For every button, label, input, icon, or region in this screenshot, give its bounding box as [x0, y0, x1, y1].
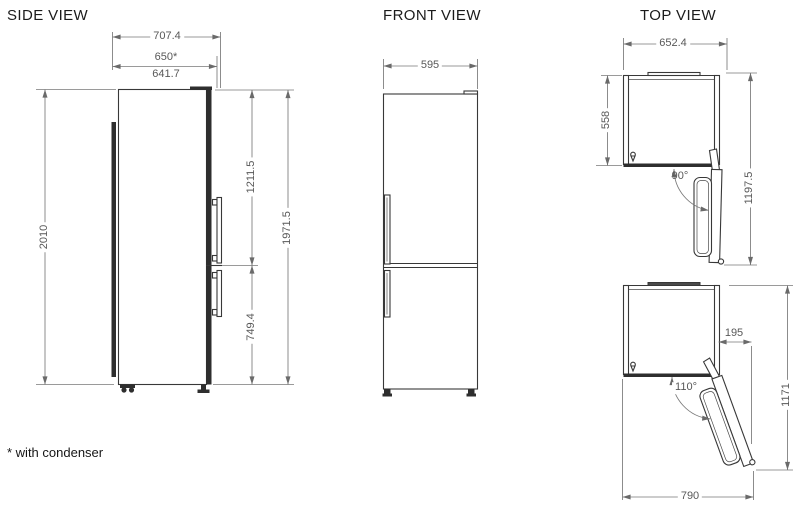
dim-freezer-door-height: 749.4: [246, 310, 258, 344]
dim-depth-with-condenser: 650*: [155, 52, 178, 64]
dim-depth-body: 641.7: [152, 69, 180, 81]
labels-layer: SIDE VIEW FRONT VIEW TOP VIEW 707.4 650*…: [0, 0, 800, 509]
dim-open-110-angle: 110°: [672, 382, 700, 394]
dim-open-90-angle: 90°: [672, 171, 689, 183]
dim-doors-height: 1971.5: [282, 208, 294, 248]
dim-width-overall: 652.4: [656, 38, 690, 50]
dim-open-110-side-offset: 195: [725, 328, 743, 340]
dim-open-90-depth: 1197.5: [744, 169, 756, 208]
footnote: * with condenser: [7, 445, 103, 460]
dim-depth-no-door: 558: [601, 108, 613, 132]
spec-sheet: SIDE VIEW FRONT VIEW TOP VIEW 707.4 650*…: [0, 0, 800, 509]
dim-width: 595: [418, 60, 442, 72]
dim-fridge-door-height: 1211.5: [246, 158, 258, 197]
dim-height-overall: 2010: [39, 222, 51, 252]
front-view-title: FRONT VIEW: [383, 7, 481, 24]
top-view-title: TOP VIEW: [640, 7, 716, 24]
dim-depth-overall: 707.4: [150, 31, 184, 43]
side-view-title: SIDE VIEW: [7, 7, 88, 24]
dim-open-110-depth: 1171: [781, 380, 793, 410]
dim-open-110-width: 790: [678, 491, 702, 503]
